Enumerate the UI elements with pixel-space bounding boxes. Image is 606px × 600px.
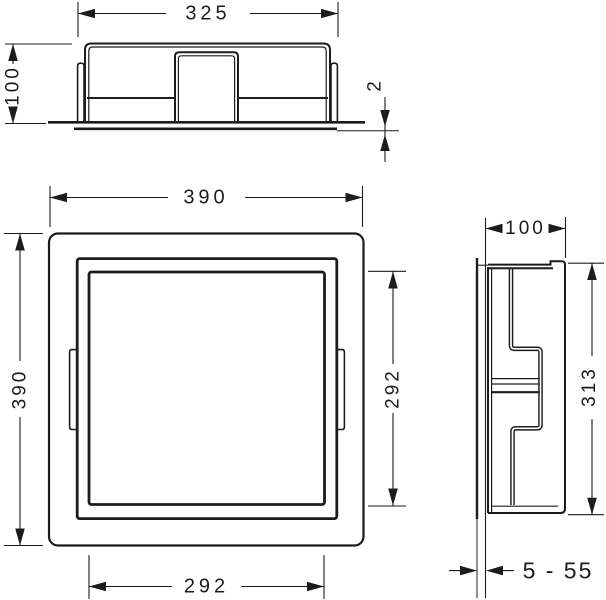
side-view: 100 313 5 - 55 bbox=[449, 217, 604, 598]
dim-front-width: 390 bbox=[50, 186, 363, 227]
arrowhead-left-icon bbox=[486, 566, 503, 576]
dim-label-opening-width: 292 bbox=[184, 576, 229, 598]
arrowhead-up-icon bbox=[8, 44, 18, 61]
dim-label-front-width: 390 bbox=[183, 187, 228, 209]
front-frame-outer bbox=[49, 234, 364, 546]
arrowhead-down-icon bbox=[388, 489, 398, 506]
dim-top-height: 100 bbox=[3, 44, 73, 124]
technical-drawing-page: 325 100 2 390 bbox=[0, 0, 606, 600]
dim-top-width: 325 bbox=[78, 2, 338, 37]
front-opening bbox=[89, 272, 325, 505]
dim-label-top-height: 100 bbox=[3, 65, 24, 106]
arrowhead-down-icon bbox=[380, 110, 390, 127]
arrowhead-left-icon bbox=[50, 193, 67, 203]
dim-opening-width: 292 bbox=[89, 555, 324, 599]
arrowhead-down-icon bbox=[587, 498, 597, 515]
front-frame-middle bbox=[77, 259, 337, 519]
arrowhead-right-icon bbox=[307, 582, 324, 592]
dim-label-flange: 2 bbox=[365, 78, 386, 92]
dim-label-tile-range: 5 - 55 bbox=[523, 558, 594, 584]
arrowhead-right-icon bbox=[549, 224, 566, 234]
arrowhead-left-icon bbox=[89, 582, 106, 592]
dim-label-front-height: 390 bbox=[10, 369, 31, 410]
dim-tile-range: 5 - 55 bbox=[449, 558, 593, 584]
arrowhead-right-icon bbox=[346, 193, 363, 203]
arrowhead-up-icon bbox=[587, 263, 597, 280]
side-body-silhouette bbox=[488, 261, 565, 513]
top-view-center-block-outer bbox=[175, 52, 238, 122]
dim-front-height: 390 bbox=[4, 234, 43, 546]
top-view-rail-left bbox=[78, 63, 84, 123]
arrowhead-left-icon bbox=[486, 224, 503, 234]
arrowhead-down-icon bbox=[15, 529, 25, 546]
dim-label-side-depth: 100 bbox=[505, 218, 546, 239]
dim-label-side-height: 313 bbox=[579, 366, 600, 407]
arrowhead-down-icon bbox=[8, 107, 18, 124]
dim-side-depth: 100 bbox=[486, 217, 566, 258]
dim-label-top-width: 325 bbox=[185, 3, 230, 25]
side-step-profile bbox=[511, 268, 541, 505]
arrowhead-up-icon bbox=[15, 234, 25, 251]
arrowhead-left-icon bbox=[78, 9, 95, 19]
niche-dimension-drawing: 325 100 2 390 bbox=[0, 0, 606, 600]
dim-opening-height: 292 bbox=[368, 271, 406, 506]
arrowhead-right-icon bbox=[321, 9, 338, 19]
side-step-profile-core bbox=[511, 268, 541, 505]
top-view-center-block-inner bbox=[178, 56, 234, 122]
arrowhead-up-icon bbox=[380, 135, 390, 152]
front-view: 390 390 292 292 bbox=[4, 186, 406, 599]
top-view-rail-right bbox=[331, 63, 337, 123]
arrowhead-right-icon bbox=[460, 566, 477, 576]
top-view: 325 100 2 bbox=[3, 2, 400, 162]
dim-side-height: 313 bbox=[568, 263, 604, 515]
dim-flange-lip: 2 bbox=[365, 78, 390, 162]
arrowhead-up-icon bbox=[388, 272, 398, 289]
dim-label-opening-height: 292 bbox=[383, 368, 404, 409]
top-view-body-inner bbox=[89, 47, 326, 122]
